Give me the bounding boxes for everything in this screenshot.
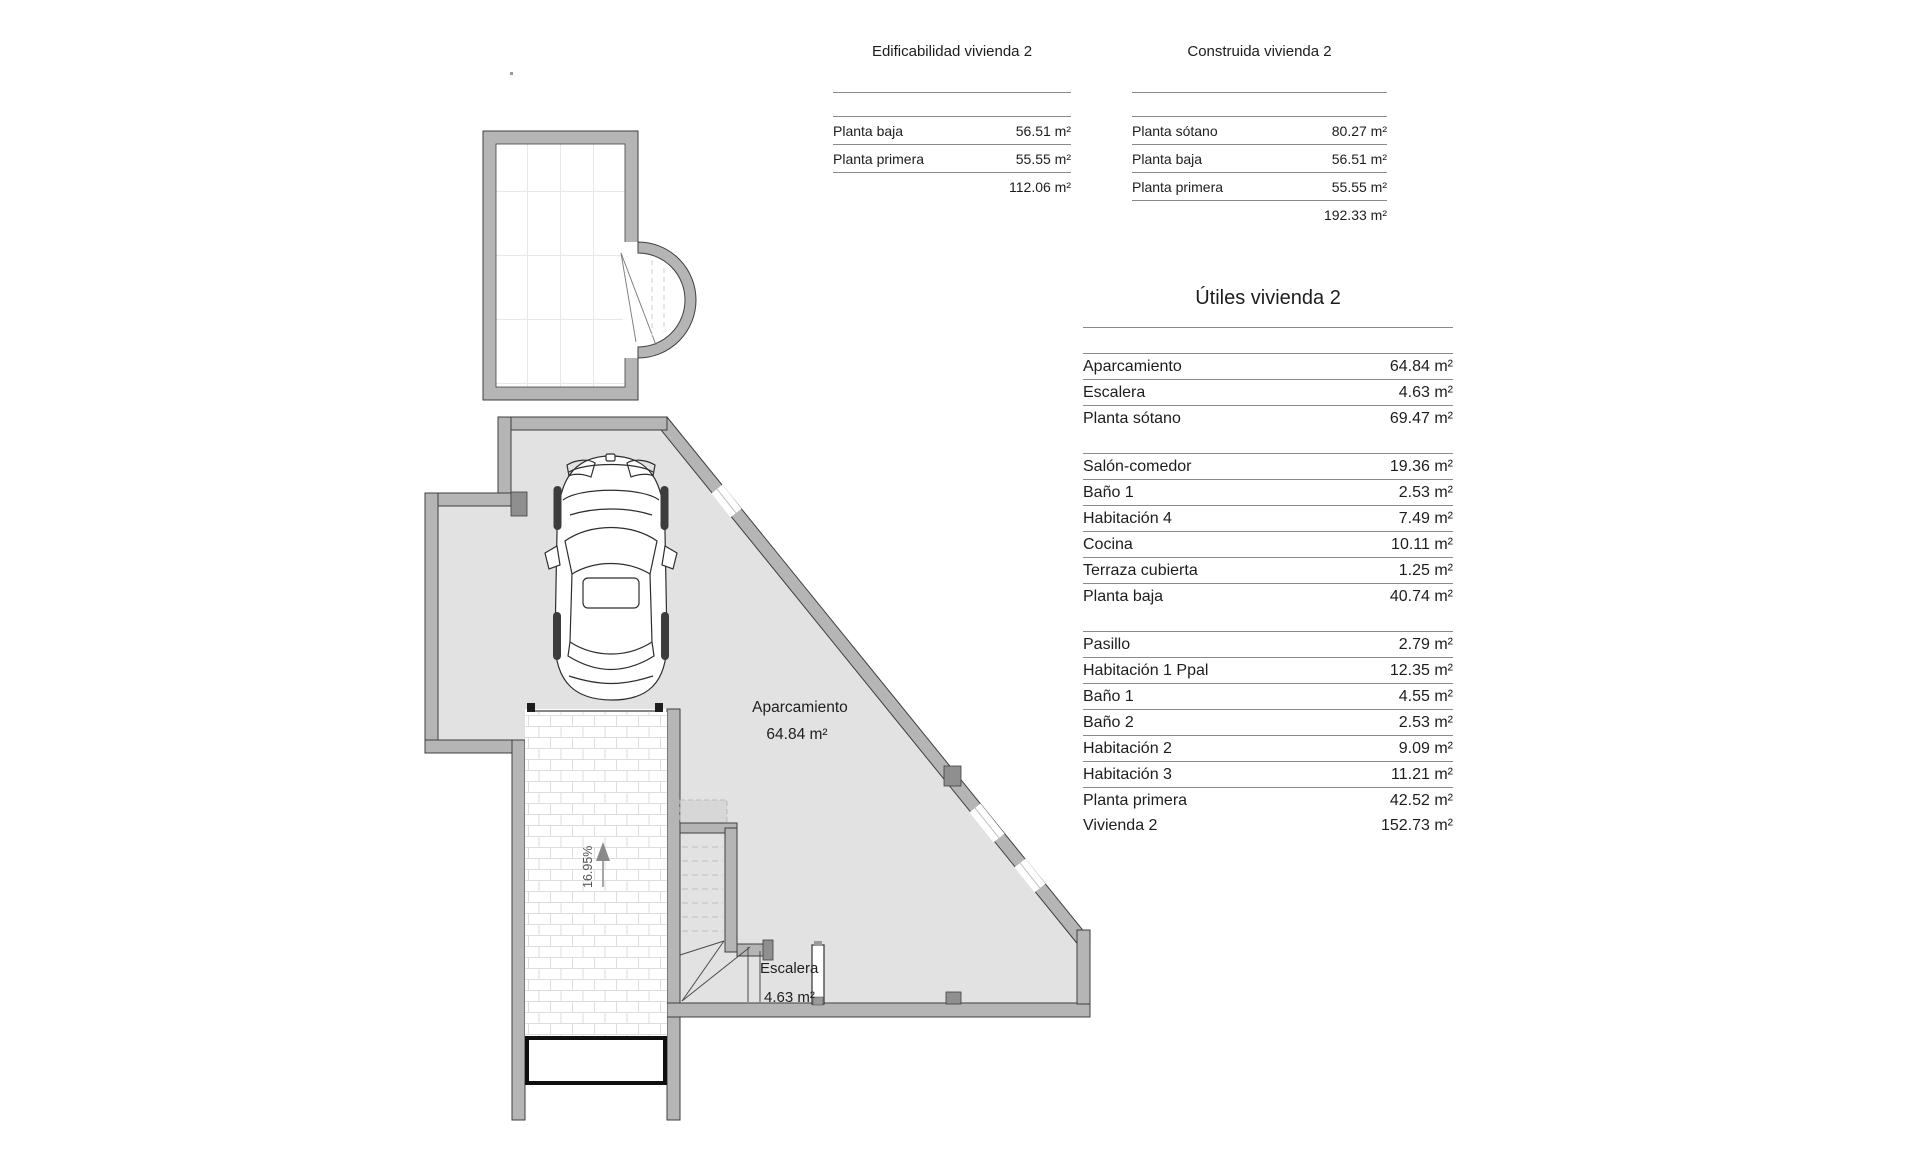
row-value: 56.51 m²: [1332, 151, 1387, 167]
table-row: Aparcamiento64.84 m²: [1083, 354, 1453, 380]
table-row: Planta sótano80.27 m²: [1132, 117, 1387, 145]
row-value: 4.63 m²: [1399, 384, 1453, 402]
table-row: Planta baja56.51 m²: [1132, 145, 1387, 173]
left-wall: [425, 493, 438, 753]
row-value: 55.55 m²: [1332, 179, 1387, 195]
row-label: Habitación 3: [1083, 766, 1172, 784]
table-row: Habitación 47.49 m²: [1083, 506, 1453, 532]
table-header-band: [1132, 92, 1387, 117]
table-row: Escalera4.63 m²: [1083, 380, 1453, 406]
row-label: Vivienda 2: [1083, 817, 1157, 835]
ramp-right-wall: [667, 709, 680, 1120]
row-label: Planta sótano: [1083, 410, 1181, 428]
escalera-label: Escalera: [760, 960, 819, 977]
table-row: Habitación 29.09 m²: [1083, 736, 1453, 762]
row-label: Baño 1: [1083, 484, 1134, 502]
table-row: Planta primera55.55 m²: [833, 145, 1071, 173]
pillar: [946, 992, 961, 1004]
car-wheel: [553, 612, 561, 660]
table-row: Planta baja40.74 m²: [1083, 584, 1453, 609]
row-value: 7.49 m²: [1399, 510, 1453, 528]
table-row: Pasillo2.79 m²: [1083, 632, 1453, 658]
table-group: Salón-comedor19.36 m²Baño 12.53 m²Habita…: [1083, 453, 1453, 609]
car-wheel: [661, 612, 669, 660]
row-label: Planta primera: [1132, 179, 1223, 195]
row-label: Baño 2: [1083, 714, 1134, 732]
table-rows: Planta sótano80.27 m²Planta baja56.51 m²…: [1132, 117, 1387, 228]
pillar: [511, 492, 527, 516]
escalera-area-label: 4.63 m²: [764, 989, 815, 1006]
row-label: Planta baja: [1083, 588, 1163, 606]
car-sunroof: [583, 578, 639, 608]
row-label: Habitación 4: [1083, 510, 1172, 528]
row-value: 56.51 m²: [1016, 123, 1071, 139]
bottom-wall: [667, 1003, 1090, 1017]
car-wheel: [661, 486, 669, 530]
table-row: Habitación 311.21 m²: [1083, 762, 1453, 788]
aparcamiento-area-label: 64.84 m²: [766, 726, 827, 743]
row-label: Baño 1: [1083, 688, 1134, 706]
stair-flight-above: [680, 800, 727, 823]
top-wall: [498, 417, 667, 430]
table-construida: Construida vivienda 2 Planta sótano80.27…: [1132, 42, 1387, 228]
table-group: Pasillo2.79 m²Habitación 1 Ppal12.35 m²B…: [1083, 631, 1453, 838]
terrace-structure: [483, 131, 696, 400]
table-row: Planta sótano69.47 m²: [1083, 406, 1453, 431]
car: [545, 454, 677, 700]
pillar: [944, 766, 961, 786]
row-value: 40.74 m²: [1390, 588, 1453, 606]
row-value: 2.79 m²: [1399, 636, 1453, 654]
terrace-floor-grid: [496, 144, 625, 387]
table-row: Baño 12.53 m²: [1083, 480, 1453, 506]
row-value: 80.27 m²: [1332, 123, 1387, 139]
row-value: 10.11 m²: [1391, 536, 1453, 554]
row-label: Planta primera: [1083, 792, 1187, 810]
bay-opening: [623, 242, 640, 358]
row-label: Habitación 2: [1083, 740, 1172, 758]
floorplan-page: 16.95%: [0, 0, 1920, 1166]
row-value: 192.33 m²: [1324, 207, 1387, 223]
row-value: 42.52 m²: [1390, 792, 1453, 810]
door-post: [527, 703, 535, 712]
table-utiles: Útiles vivienda 2 Aparcamiento64.84 m²Es…: [1083, 285, 1453, 838]
left-upper-wall: [498, 417, 511, 494]
car-badge: [606, 454, 615, 461]
table-row: Terraza cubierta1.25 m²: [1083, 558, 1453, 584]
table-row: 112.06 m²: [833, 173, 1071, 200]
table-row: Habitación 1 Ppal12.35 m²: [1083, 658, 1453, 684]
row-label: Planta baja: [833, 123, 903, 139]
stair-end-post: [763, 940, 773, 960]
table-header-band: [833, 92, 1071, 117]
garage-door: [527, 1038, 665, 1083]
door-post: [655, 703, 663, 712]
table-group: Aparcamiento64.84 m²Escalera4.63 m²Plant…: [1083, 354, 1453, 431]
ramp-slope-label: 16.95%: [581, 846, 595, 888]
table-title: Edificabilidad vivienda 2: [833, 42, 1071, 62]
table-header-band: [1083, 327, 1453, 354]
table-row: Baño 22.53 m²: [1083, 710, 1453, 736]
print-dot: [510, 72, 513, 75]
table-row: Planta primera42.52 m²: [1083, 788, 1453, 813]
table-row: Planta baja56.51 m²: [833, 117, 1071, 145]
stair-wall: [725, 828, 737, 952]
row-label: Pasillo: [1083, 636, 1130, 654]
basement-plan: [425, 417, 1090, 1120]
row-value: 2.53 m²: [1399, 484, 1453, 502]
row-value: 12.35 m²: [1390, 662, 1453, 680]
row-value: 4.55 m²: [1399, 688, 1453, 706]
right-wall: [1077, 930, 1090, 1004]
stair-bay-wall: [638, 242, 696, 358]
row-value: 152.73 m²: [1381, 817, 1453, 835]
row-label: Salón-comedor: [1083, 458, 1192, 476]
row-value: 11.21 m²: [1391, 766, 1453, 784]
row-label: Planta sótano: [1132, 123, 1218, 139]
table-row: Baño 14.55 m²: [1083, 684, 1453, 710]
row-value: 64.84 m²: [1390, 358, 1453, 376]
row-label: Planta baja: [1132, 151, 1202, 167]
table-row: 192.33 m²: [1132, 201, 1387, 228]
row-label: Terraza cubierta: [1083, 562, 1198, 580]
row-value: 1.25 m²: [1399, 562, 1453, 580]
ramp-hatch: [525, 712, 667, 1037]
aparcamiento-label: Aparcamiento: [752, 699, 848, 716]
ramp-left-wall: [512, 740, 525, 1120]
table-rows: Planta baja56.51 m²Planta primera55.55 m…: [833, 117, 1071, 200]
row-label: Habitación 1 Ppal: [1083, 662, 1208, 680]
table-rows: Aparcamiento64.84 m²Escalera4.63 m²Plant…: [1083, 354, 1453, 838]
row-label: Aparcamiento: [1083, 358, 1182, 376]
ramp: 16.95%: [525, 712, 667, 1083]
table-row: Cocina10.11 m²: [1083, 532, 1453, 558]
row-value: 19.36 m²: [1390, 458, 1453, 476]
table-row: Vivienda 2152.73 m²: [1083, 813, 1453, 838]
car-wheel: [554, 486, 562, 530]
row-label: Cocina: [1083, 536, 1133, 554]
row-label: Escalera: [1083, 384, 1145, 402]
table-title: Construida vivienda 2: [1132, 42, 1387, 62]
row-value: 112.06 m²: [1009, 179, 1071, 195]
door-hinge: [814, 941, 822, 946]
row-value: 9.09 m²: [1399, 740, 1453, 758]
table-title: Útiles vivienda 2: [1083, 285, 1453, 311]
table-row: Salón-comedor19.36 m²: [1083, 454, 1453, 480]
table-edificabilidad: Edificabilidad vivienda 2 Planta baja56.…: [833, 42, 1071, 200]
row-label: Planta primera: [833, 151, 924, 167]
table-row: Planta primera55.55 m²: [1132, 173, 1387, 201]
row-value: 55.55 m²: [1016, 151, 1071, 167]
row-value: 2.53 m²: [1399, 714, 1453, 732]
row-value: 69.47 m²: [1390, 410, 1453, 428]
